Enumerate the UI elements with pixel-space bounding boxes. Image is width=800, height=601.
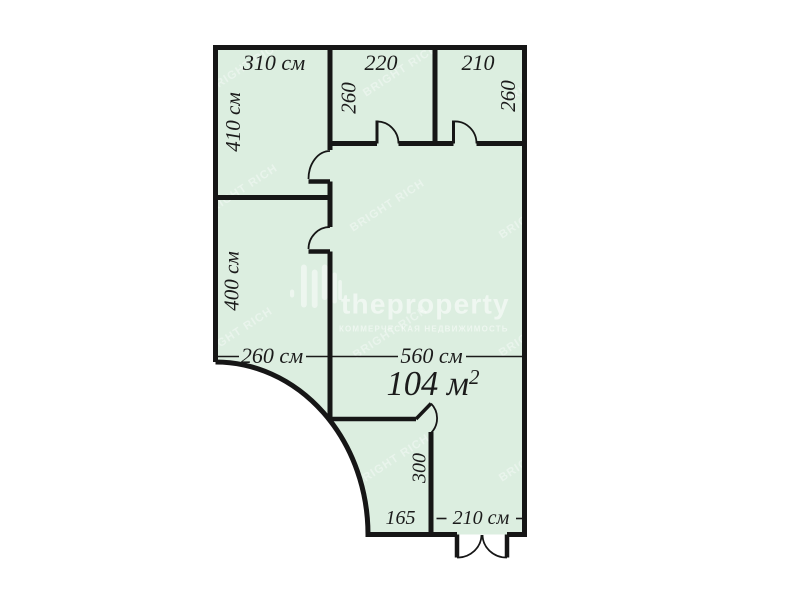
svg-text:410 см: 410 см [221,92,245,151]
svg-text:104 м2: 104 м2 [387,365,480,403]
svg-text:165: 165 [386,507,416,529]
svg-text:260: 260 [337,82,361,114]
svg-text:400 см: 400 см [220,251,244,310]
svg-text:260 см: 260 см [241,343,303,368]
svg-text:220: 220 [365,50,398,75]
svg-text:theproperty: theproperty [341,289,510,320]
svg-text:300: 300 [409,453,431,484]
svg-text:210 см: 210 см [453,507,510,529]
svg-text:210: 210 [462,50,495,75]
svg-text:310 см: 310 см [242,50,305,75]
svg-text:260: 260 [496,80,520,112]
svg-text:КОММЕРЧЕСКАЯ НЕДВИЖИМОСТЬ: КОММЕРЧЕСКАЯ НЕДВИЖИМОСТЬ [339,325,509,334]
